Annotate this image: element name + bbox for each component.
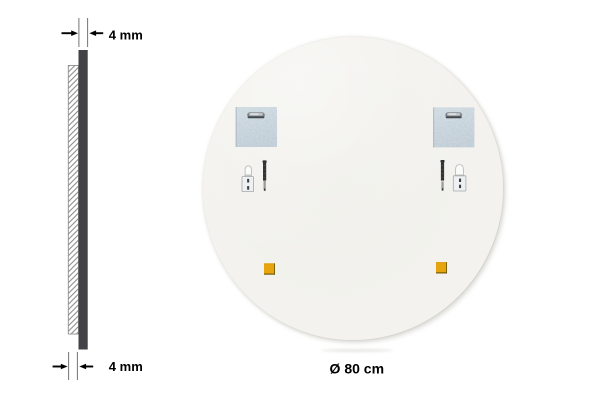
svg-text:4 mm: 4 mm [109, 359, 143, 374]
svg-text:Ø 80 cm: Ø 80 cm [330, 360, 384, 376]
svg-text:4 mm: 4 mm [109, 28, 143, 43]
